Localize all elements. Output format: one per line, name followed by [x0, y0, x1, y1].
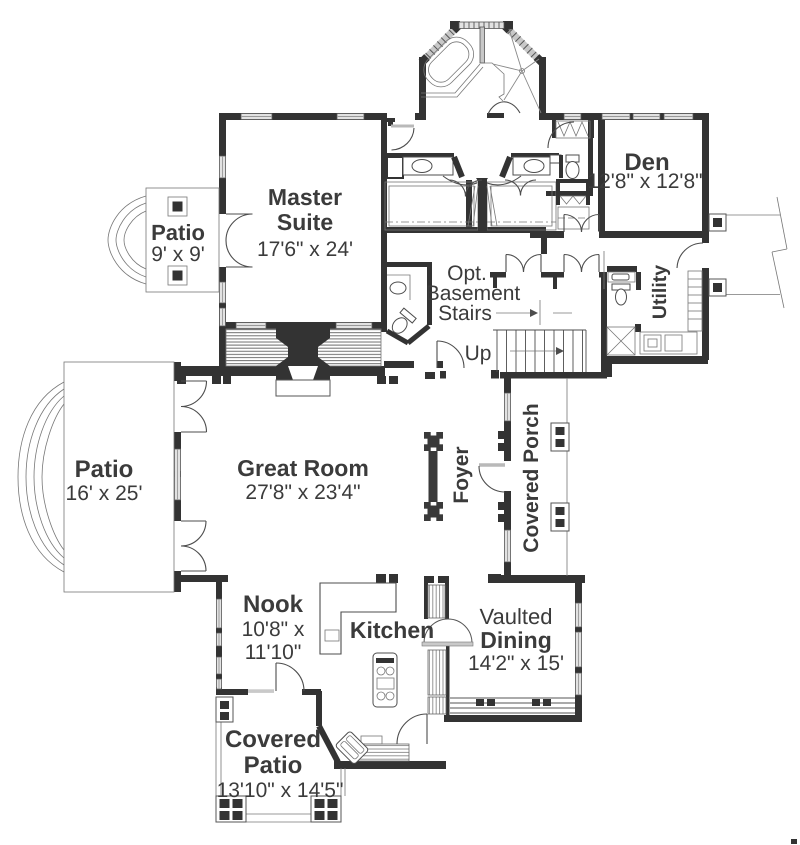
- svg-text:Suite: Suite: [277, 209, 333, 235]
- svg-text:11'10": 11'10": [245, 641, 302, 664]
- svg-text:Covered: Covered: [225, 726, 321, 753]
- svg-text:Up: Up: [465, 342, 492, 365]
- svg-text:Master: Master: [268, 184, 342, 210]
- svg-text:9' x 9': 9' x 9': [151, 243, 205, 266]
- svg-text:16' x 25': 16' x 25': [66, 482, 143, 505]
- svg-text:27'8" x 23'4": 27'8" x 23'4": [245, 481, 360, 504]
- svg-text:Patio: Patio: [75, 456, 134, 483]
- svg-text:17'6" x 24': 17'6" x 24': [257, 238, 353, 261]
- svg-text:Nook: Nook: [243, 591, 304, 618]
- svg-text:Vaulted: Vaulted: [480, 604, 553, 629]
- svg-text:12'8" x 12'8": 12'8" x 12'8": [587, 170, 702, 193]
- svg-text:Utility: Utility: [649, 265, 671, 319]
- svg-text:13'10" x 14'5": 13'10" x 14'5": [217, 779, 344, 802]
- svg-text:Great Room: Great Room: [237, 455, 369, 481]
- svg-text:Patio: Patio: [244, 752, 303, 779]
- svg-text:Kitchen: Kitchen: [350, 617, 434, 643]
- svg-text:Stairs: Stairs: [438, 302, 492, 325]
- svg-text:Covered Porch: Covered Porch: [520, 403, 543, 552]
- svg-text:Dining: Dining: [480, 627, 552, 653]
- svg-text:Foyer: Foyer: [450, 446, 473, 503]
- svg-text:Patio: Patio: [151, 220, 205, 245]
- svg-text:14'2" x 15': 14'2" x 15': [468, 652, 564, 675]
- svg-text:10'8" x: 10'8" x: [242, 618, 305, 641]
